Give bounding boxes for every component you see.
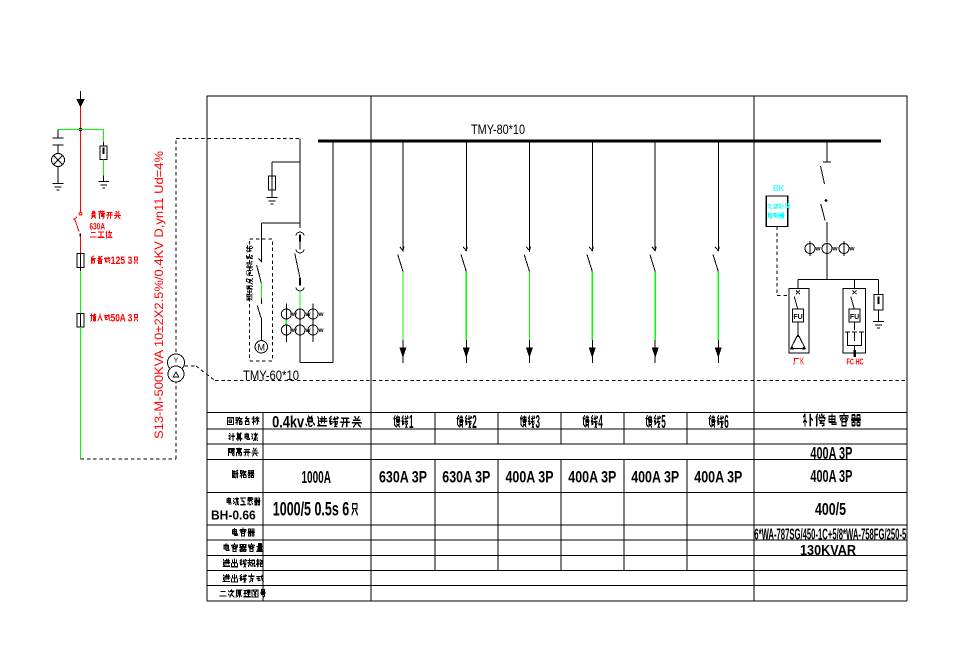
svg-text:1: 1 [409, 412, 414, 432]
svg-text:S13-M-500KVA 10±2X2.5%/0.4KV D: S13-M-500KVA 10±2X2.5%/0.4KV D,yn11 Ud=4… [152, 151, 166, 439]
svg-text:5: 5 [661, 412, 666, 432]
svg-text:M: M [258, 342, 266, 352]
svg-text:w: w [318, 327, 325, 334]
svg-text:400A 3P: 400A 3P [631, 468, 679, 487]
svg-text:BK: BK [773, 183, 785, 193]
svg-text:630A 3P: 630A 3P [379, 468, 427, 487]
svg-text:FC HC: FC HC [847, 357, 864, 366]
svg-text:w: w [318, 311, 325, 318]
svg-text:w: w [291, 311, 298, 318]
svg-text:6*WA-787SG/450-1C+5/8*WA-758FG: 6*WA-787SG/450-1C+5/8*WA-758FG/250-5 [754, 526, 906, 543]
svg-text:w: w [305, 327, 312, 334]
svg-text:TMY-60*10: TMY-60*10 [243, 367, 299, 383]
svg-text:K: K [800, 356, 804, 367]
svg-text:w: w [832, 246, 839, 253]
svg-text:FU: FU [793, 314, 802, 321]
svg-text:400A 3P: 400A 3P [506, 468, 554, 487]
svg-text:1000/5 0.5s 6: 1000/5 0.5s 6 [273, 499, 349, 520]
svg-text:0.4kv: 0.4kv [272, 413, 305, 431]
svg-text:130KVAR: 130KVAR [800, 542, 856, 559]
svg-text:TMY-80*10: TMY-80*10 [471, 121, 525, 137]
svg-text:400A 3P: 400A 3P [810, 443, 852, 463]
svg-text:630A: 630A [90, 222, 106, 233]
svg-text:w: w [849, 246, 856, 253]
svg-text:Y: Y [174, 358, 179, 365]
svg-text:400A 3P: 400A 3P [810, 466, 852, 486]
svg-text:2: 2 [472, 412, 477, 432]
svg-text:400/5: 400/5 [815, 499, 846, 519]
svg-text:4: 4 [598, 412, 603, 432]
svg-text:3: 3 [536, 412, 541, 432]
svg-text:630A 3P: 630A 3P [442, 468, 490, 487]
svg-text:50A 3: 50A 3 [111, 313, 133, 325]
svg-text:400A 3P: 400A 3P [568, 468, 616, 487]
svg-text:1000A: 1000A [301, 467, 331, 487]
svg-text:6: 6 [724, 412, 729, 432]
svg-text:w: w [815, 246, 822, 253]
svg-text:w: w [305, 311, 312, 318]
svg-text:BH-0.66: BH-0.66 [211, 509, 256, 523]
svg-text:400A 3P: 400A 3P [694, 468, 742, 487]
svg-text:FU: FU [850, 314, 859, 321]
svg-text:125 3: 125 3 [111, 255, 133, 267]
svg-text:w: w [291, 327, 298, 334]
